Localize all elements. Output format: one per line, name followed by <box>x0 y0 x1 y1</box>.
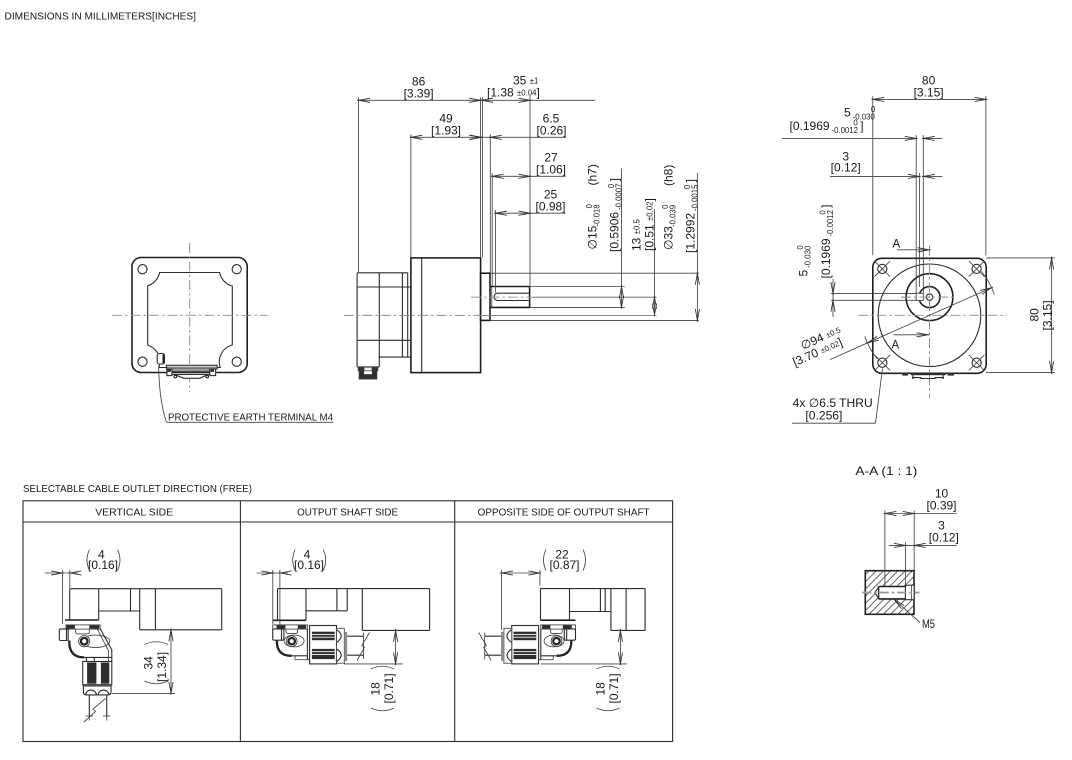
svg-text:-0.030: -0.030 <box>804 245 813 268</box>
svg-text:[0.5906: [0.5906 <box>608 212 622 252</box>
svg-text:[0.98]: [0.98] <box>535 199 565 213</box>
svg-text:13 ±0.5: 13 ±0.5 <box>630 219 644 251</box>
svg-text:[0.26]: [0.26] <box>536 123 566 137</box>
svg-text:[0.87]: [0.87] <box>549 558 579 572</box>
svg-text:(h7): (h7) <box>586 164 600 185</box>
svg-text:(h8): (h8) <box>662 165 676 186</box>
svg-text:5: 5 <box>797 270 811 277</box>
svg-text:[3.39]: [3.39] <box>404 86 434 100</box>
svg-text:[0.51 ±0.02]: [0.51 ±0.02] <box>643 198 657 251</box>
svg-text:∅15: ∅15 <box>586 225 600 249</box>
svg-text:A: A <box>892 340 900 352</box>
svg-text:[0.71]: [0.71] <box>607 673 621 703</box>
svg-text:VERTICAL SIDE: VERTICAL SIDE <box>95 507 173 519</box>
svg-text:[0.71]: [0.71] <box>382 673 396 703</box>
svg-text:-0.0015: -0.0015 <box>691 184 700 211</box>
svg-text:[3.15]: [3.15] <box>914 85 944 99</box>
svg-text:A: A <box>893 239 901 251</box>
svg-text:18: 18 <box>594 682 608 696</box>
svg-text:OUTPUT SHAFT SIDE: OUTPUT SHAFT SIDE <box>297 507 398 519</box>
svg-text:[0.16]: [0.16] <box>88 558 118 572</box>
svg-text:-0.018: -0.018 <box>593 204 602 226</box>
svg-text:[1.34]: [1.34] <box>155 652 169 682</box>
svg-text:80: 80 <box>1028 308 1042 322</box>
svg-text:[0.1969: [0.1969 <box>819 238 833 278</box>
svg-text:[1.2992: [1.2992 <box>684 213 698 253</box>
svg-text:SELECTABLE CABLE OUTLET DIRECT: SELECTABLE CABLE OUTLET DIRECTION (FREE) <box>23 483 252 495</box>
svg-text:]: ] <box>860 119 863 133</box>
svg-text:[0.12]: [0.12] <box>831 161 861 175</box>
svg-text:[0.12]: [0.12] <box>929 531 959 545</box>
svg-text:]: ] <box>684 179 698 182</box>
svg-text:[1.06]: [1.06] <box>536 162 566 176</box>
svg-text:18: 18 <box>369 682 383 696</box>
svg-text:M5: M5 <box>922 617 935 631</box>
svg-text:[1.38 ±0.04]: [1.38 ±0.04] <box>487 86 540 100</box>
svg-text:34: 34 <box>142 656 156 670</box>
svg-text:DIMENSIONS IN MILLIMETERS[INCH: DIMENSIONS IN MILLIMETERS[INCHES] <box>5 11 197 23</box>
svg-text:OPPOSITE SIDE OF OUTPUT SHAFT: OPPOSITE SIDE OF OUTPUT SHAFT <box>478 507 651 519</box>
svg-text:-0.0007: -0.0007 <box>615 184 624 210</box>
svg-text:-0.0012: -0.0012 <box>826 210 835 236</box>
svg-text:A-A (1 : 1): A-A (1 : 1) <box>855 464 917 478</box>
svg-text:5: 5 <box>844 106 851 120</box>
svg-text:]: ] <box>819 204 833 207</box>
svg-text:[0.16]: [0.16] <box>294 558 324 572</box>
svg-text:]: ] <box>608 178 622 181</box>
svg-text:[0.256]: [0.256] <box>805 409 842 423</box>
svg-text:-0.039: -0.039 <box>669 205 678 227</box>
svg-text:[0.39]: [0.39] <box>926 499 956 513</box>
svg-text:-0.0012: -0.0012 <box>832 126 858 135</box>
svg-text:[3.15]: [3.15] <box>1041 300 1055 330</box>
svg-text:PROTECTIVE EARTH TERMINAL M4: PROTECTIVE EARTH TERMINAL M4 <box>168 411 333 423</box>
svg-text:[1.93]: [1.93] <box>431 123 461 137</box>
svg-text:∅33: ∅33 <box>662 226 676 250</box>
svg-text:[0.1969: [0.1969 <box>790 119 830 133</box>
